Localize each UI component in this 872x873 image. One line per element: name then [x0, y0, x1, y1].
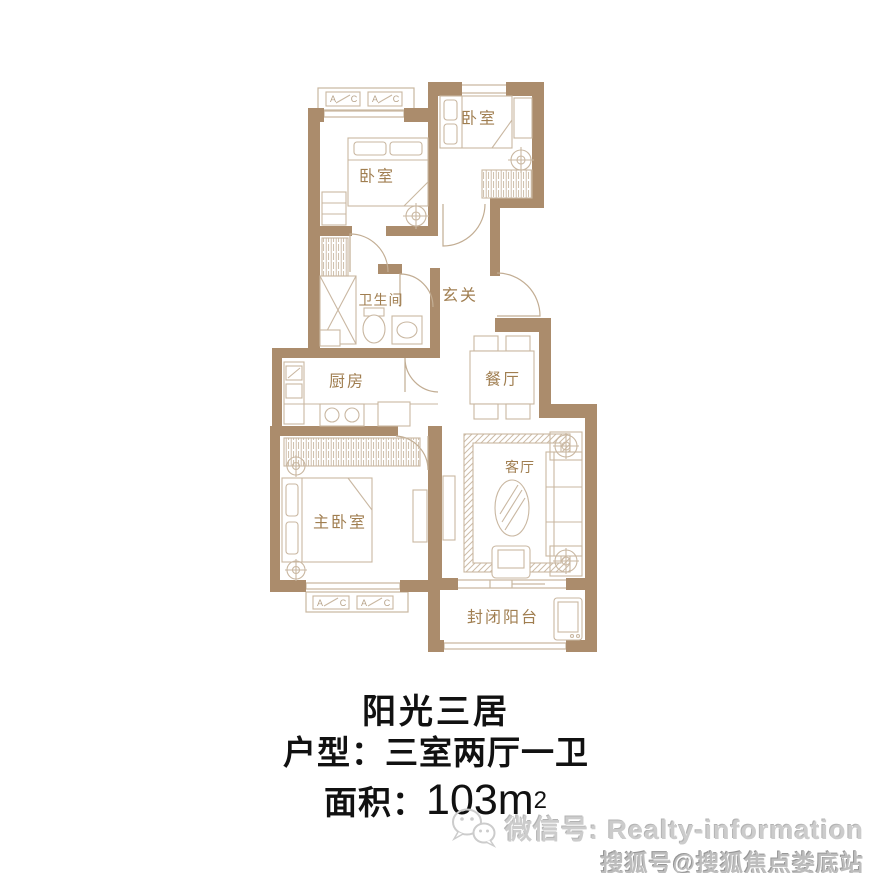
ac-letter-a: A [317, 598, 323, 608]
plan-title: 阳光三居 [0, 692, 872, 733]
room-label-master: 主卧室 [313, 514, 367, 532]
ac-symbol [326, 92, 402, 106]
room-label-balcony: 封闭阳台 [467, 609, 539, 627]
room-label-living: 客厅 [505, 459, 535, 475]
tv-cabinet-living [443, 476, 455, 540]
watermark: 微信号: Realty-information 搜狐号@搜狐焦点娄底站 [364, 806, 864, 873]
door-entry [497, 273, 540, 316]
door-kitchen [405, 358, 438, 392]
fan-icon [508, 147, 534, 173]
window-balcony [444, 643, 566, 649]
ac-letter-a: A [361, 598, 367, 608]
wardrobe-hall [322, 238, 348, 276]
wechat-watermark-text: 微信号: Realty-information [505, 808, 864, 847]
washer [320, 330, 340, 346]
plan-layout-line: 户型：三室两厅一卫 [0, 733, 872, 773]
wardrobe-right-bedroom [482, 170, 532, 198]
ac-letter-c: C [384, 598, 391, 608]
nightstand-right-bedroom [514, 98, 532, 138]
room-label-dining: 餐厅 [485, 371, 521, 389]
bathroom-sink [392, 316, 422, 344]
room-label-bathroom: 卫生间 [359, 292, 404, 308]
room-label-bedroom-right: 卧室 [461, 110, 497, 128]
room-label-bedroom-left: 卧室 [359, 168, 395, 186]
window-bedroom-left [324, 111, 404, 117]
ac-letter-c: C [340, 598, 347, 608]
ac-letter-c: C [351, 94, 358, 104]
door-bedroom-right [443, 204, 485, 246]
window-master-bedroom [306, 583, 400, 589]
window-bedroom-right [460, 85, 508, 93]
balcony-slider [458, 580, 566, 588]
page: A C A C A C A C 卧室 卧室 卫生间 玄关 厨房 餐厅 客厅 主卧… [0, 0, 872, 873]
fridge [378, 402, 410, 426]
ac-symbol [313, 596, 393, 609]
room-label-kitchen: 厨房 [329, 373, 365, 391]
tv-cabinet-master [413, 490, 427, 542]
toilet [363, 308, 385, 343]
stove [320, 404, 364, 426]
ac-letter-a: A [372, 94, 378, 104]
fan-icon [403, 203, 429, 229]
sofa [546, 452, 582, 556]
room-label-entry: 玄关 [442, 287, 478, 305]
ac-letter-a: A [330, 94, 336, 104]
sohu-watermark-text: 搜狐号@搜狐焦点娄底站 [601, 844, 864, 873]
wechat-icon [449, 806, 499, 848]
balcony-cabinet [554, 598, 582, 640]
armchair [492, 546, 530, 578]
kitchen-sink [286, 366, 302, 398]
door-bathroom [400, 274, 433, 307]
dresser-left-bedroom [322, 192, 346, 225]
ac-letter-c: C [393, 94, 400, 104]
